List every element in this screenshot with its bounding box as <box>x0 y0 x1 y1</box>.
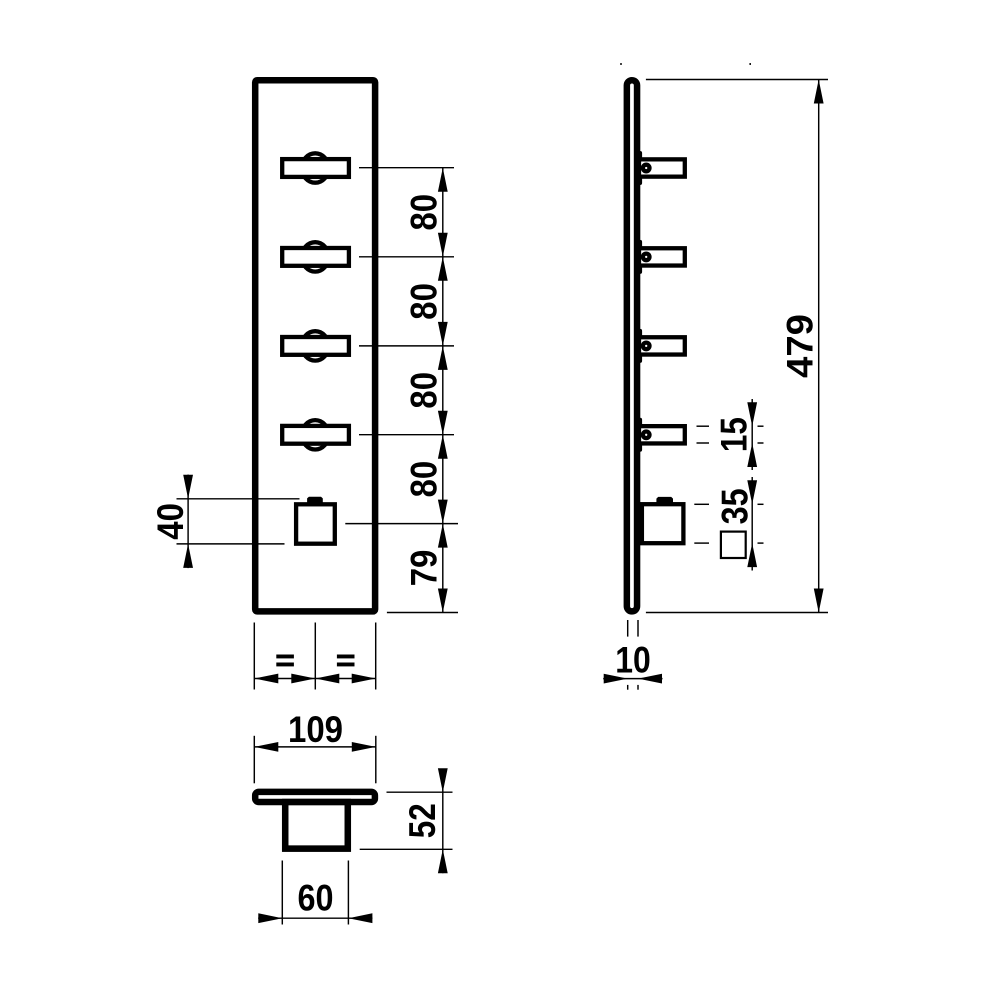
svg-text:15: 15 <box>714 417 755 452</box>
svg-text:80: 80 <box>404 194 445 231</box>
svg-text:10: 10 <box>615 639 651 680</box>
svg-text:479: 479 <box>779 314 820 378</box>
svg-text:109: 109 <box>288 709 343 750</box>
svg-text:52: 52 <box>402 803 443 838</box>
svg-text:79: 79 <box>404 550 445 587</box>
svg-text:80: 80 <box>404 283 445 320</box>
svg-text:80: 80 <box>404 372 445 409</box>
svg-text:80: 80 <box>404 461 445 498</box>
svg-text:60: 60 <box>298 877 334 918</box>
svg-text:40: 40 <box>150 503 191 540</box>
svg-text:35: 35 <box>715 488 756 524</box>
